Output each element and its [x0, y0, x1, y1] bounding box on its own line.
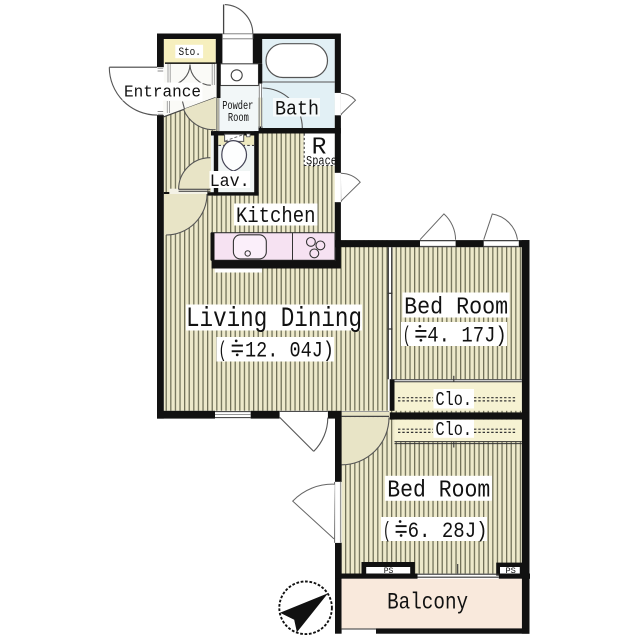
svg-text:6. 28J): 6. 28J): [408, 519, 488, 544]
svg-text:(: (: [219, 338, 227, 363]
svg-text:Bed Room: Bed Room: [404, 294, 508, 321]
svg-text:12. 04J): 12. 04J): [245, 338, 334, 363]
svg-text:Sto.: Sto.: [178, 47, 201, 59]
svg-text:Room: Room: [228, 111, 249, 125]
svg-text:Clo.: Clo.: [436, 389, 473, 411]
svg-text:Kitchen: Kitchen: [236, 204, 316, 229]
svg-text:(: (: [383, 519, 391, 544]
svg-text:Living Dining: Living Dining: [186, 304, 362, 335]
svg-text:Balcony: Balcony: [387, 589, 468, 615]
svg-text:4. 17J): 4. 17J): [427, 324, 507, 349]
svg-text:Lav.: Lav.: [210, 173, 250, 192]
svg-text:Space: Space: [306, 154, 337, 169]
svg-text:Bath: Bath: [275, 98, 319, 121]
svg-text:Entrance: Entrance: [124, 83, 201, 102]
svg-text:Clo.: Clo.: [436, 419, 473, 441]
svg-text:(: (: [403, 324, 411, 349]
svg-text:Bed Room: Bed Room: [387, 478, 490, 505]
